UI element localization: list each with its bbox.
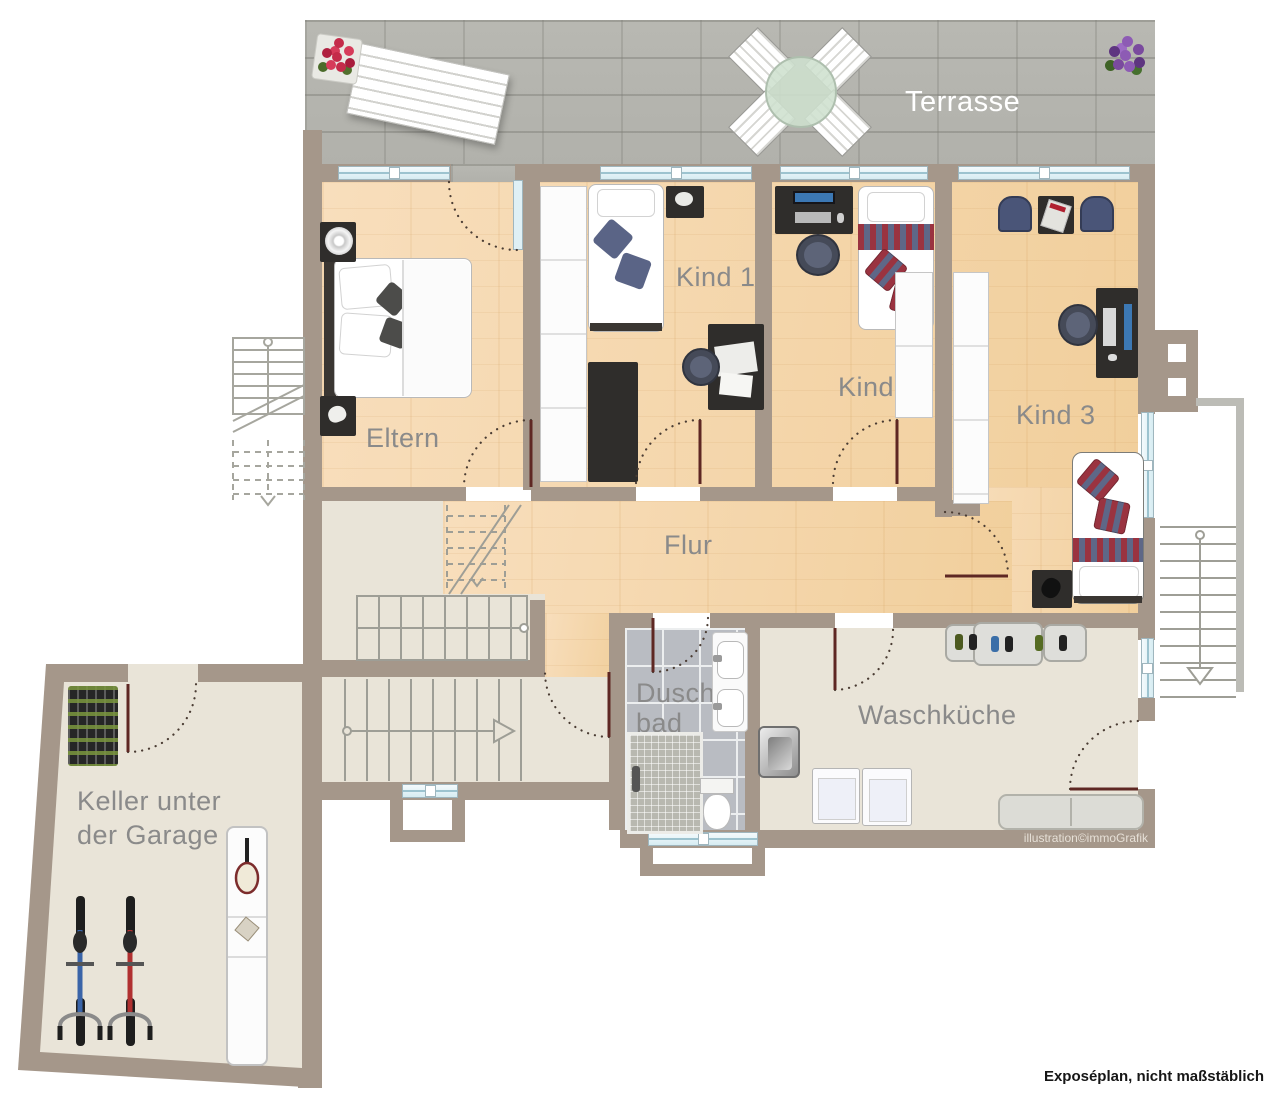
wall bbox=[298, 664, 322, 1088]
wardrobe bbox=[953, 272, 989, 504]
wall bbox=[1138, 698, 1155, 721]
faucet-icon bbox=[713, 655, 722, 662]
tall-cabinet bbox=[226, 826, 268, 1066]
room-label-flur: Flur bbox=[664, 530, 713, 561]
corridor-floor bbox=[322, 677, 609, 782]
red-flowers-icon bbox=[332, 52, 342, 62]
terrace-dining-set bbox=[737, 30, 862, 152]
pillow bbox=[597, 189, 655, 217]
sideboard bbox=[998, 794, 1144, 830]
room-label-kind1: Kind 1 bbox=[676, 262, 756, 293]
bed-footboard bbox=[1074, 596, 1142, 603]
desk-chair bbox=[682, 348, 720, 386]
blanket bbox=[858, 224, 934, 250]
keller-walls bbox=[18, 664, 322, 1088]
wall bbox=[710, 613, 835, 628]
machine-door bbox=[869, 779, 907, 822]
window bbox=[600, 166, 752, 180]
room-label-eltern: Eltern bbox=[366, 423, 440, 454]
terrace-door-leaf bbox=[513, 180, 523, 250]
monitor-screen bbox=[795, 193, 833, 202]
stair-hall-floor-lower bbox=[322, 594, 545, 661]
purple-flowers-icon bbox=[1120, 50, 1131, 61]
blanket bbox=[1073, 538, 1143, 562]
terrace-door-opening bbox=[451, 164, 515, 182]
toilet-icon bbox=[700, 778, 732, 830]
exterior-stair-left bbox=[233, 338, 304, 505]
cabinet-shelf-line bbox=[228, 956, 266, 958]
duvet bbox=[402, 260, 470, 396]
toilet-tank bbox=[700, 778, 734, 794]
window bbox=[1141, 638, 1154, 698]
wall bbox=[523, 182, 540, 490]
chimney-flue bbox=[1168, 344, 1186, 362]
shoe-tray bbox=[973, 622, 1043, 666]
faucet-icon bbox=[713, 703, 722, 710]
side-table bbox=[1038, 196, 1074, 234]
decor-object bbox=[675, 192, 693, 206]
double-washbasin bbox=[712, 632, 748, 732]
chimney bbox=[1150, 330, 1198, 412]
pillow bbox=[867, 192, 925, 222]
keller-door-opening bbox=[128, 664, 198, 683]
machine-door bbox=[818, 778, 856, 820]
wall bbox=[531, 487, 636, 501]
wardrobe bbox=[540, 186, 587, 482]
sideboard-divider bbox=[1070, 798, 1072, 826]
storage-shelf bbox=[68, 686, 118, 766]
armchair bbox=[998, 196, 1032, 232]
monitor-icon bbox=[793, 191, 835, 204]
room-label-waschkueche: Waschküche bbox=[858, 700, 1017, 731]
mouse-icon bbox=[837, 213, 844, 223]
keyboard-icon bbox=[795, 212, 831, 223]
washing-machine-icon bbox=[812, 768, 860, 824]
wall bbox=[640, 864, 765, 876]
decor-object bbox=[1038, 575, 1064, 601]
wardrobe bbox=[895, 272, 933, 418]
toilet-bowl bbox=[703, 794, 731, 830]
monitor-icon bbox=[1124, 304, 1132, 350]
room-label-keller-line1: Keller unter bbox=[77, 786, 221, 817]
room-label-terrasse: Terrasse bbox=[905, 86, 1020, 119]
dresser bbox=[588, 362, 638, 482]
single-bed bbox=[1072, 452, 1144, 604]
shower-fixture-icon bbox=[632, 766, 640, 792]
wall bbox=[322, 782, 622, 800]
exterior-stair-right bbox=[1160, 402, 1240, 697]
window bbox=[648, 832, 758, 846]
window bbox=[780, 166, 928, 180]
desk bbox=[775, 186, 853, 234]
bed-footboard bbox=[590, 323, 662, 331]
footer-note: Exposéplan, nicht maßstäblich bbox=[930, 1068, 1264, 1085]
pillow bbox=[1079, 566, 1139, 598]
window bbox=[402, 784, 458, 798]
chimney-flue bbox=[1168, 378, 1186, 396]
pillow bbox=[1093, 497, 1131, 535]
room-label-keller-line2: der Garage bbox=[77, 820, 219, 851]
desk bbox=[1096, 288, 1138, 378]
papers bbox=[719, 372, 753, 397]
shoe-rack bbox=[945, 622, 1083, 662]
washing-machine-icon bbox=[862, 768, 912, 826]
shoes-icon bbox=[955, 634, 963, 650]
wall bbox=[390, 830, 465, 842]
mouse-icon bbox=[1108, 354, 1117, 361]
wall bbox=[897, 487, 952, 501]
window bbox=[338, 166, 450, 180]
single-bed bbox=[588, 184, 664, 332]
wall bbox=[322, 660, 545, 677]
utility-sink bbox=[758, 726, 800, 778]
wall bbox=[935, 182, 952, 517]
terrace-table bbox=[765, 56, 837, 128]
double-bed bbox=[324, 256, 474, 400]
basin bbox=[768, 737, 792, 770]
lamp-icon bbox=[325, 227, 353, 255]
bicycle-blue-icon bbox=[60, 896, 100, 1046]
desk-chair bbox=[1058, 304, 1098, 346]
magazine-title bbox=[1049, 203, 1066, 213]
bicycle-red-icon bbox=[110, 896, 150, 1046]
watermark: illustration©immoGrafik bbox=[900, 831, 1148, 845]
desk-chair bbox=[796, 234, 840, 276]
floor-plan: Terrasse bbox=[0, 0, 1279, 1104]
room-label-kind3: Kind 3 bbox=[1016, 400, 1096, 431]
window bbox=[958, 166, 1130, 180]
keyboard-icon bbox=[1103, 308, 1116, 346]
armchair bbox=[1080, 196, 1114, 232]
wall bbox=[322, 487, 466, 501]
wall bbox=[700, 487, 833, 501]
shoes-icon bbox=[234, 916, 259, 941]
nightstand bbox=[1032, 570, 1072, 608]
magazine bbox=[1040, 199, 1071, 233]
shoe-tray bbox=[1043, 624, 1087, 662]
